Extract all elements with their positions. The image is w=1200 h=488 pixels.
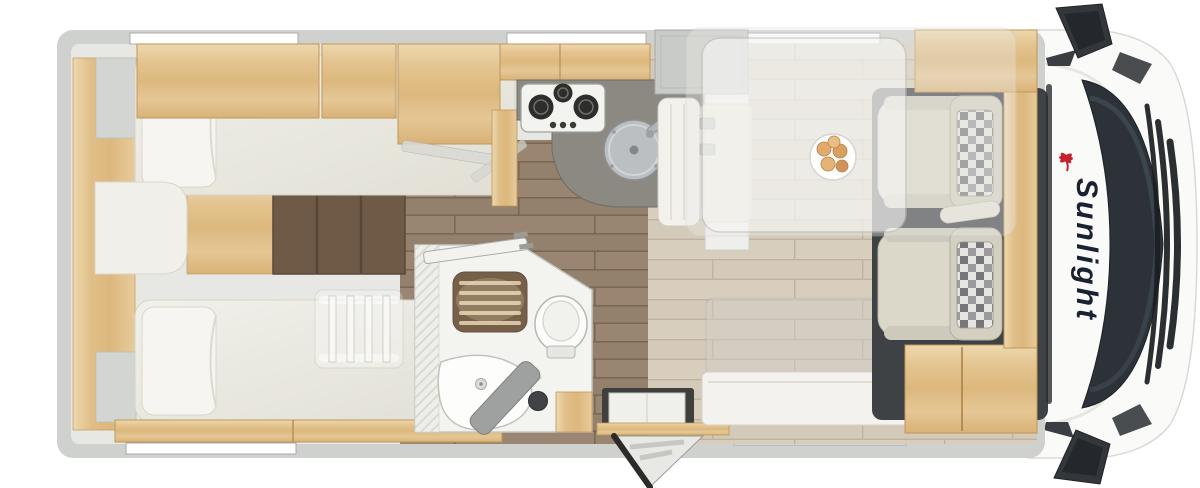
- corner-cabinet-bottom: [96, 352, 136, 422]
- hob-knob: [560, 122, 566, 128]
- food-plate: [810, 134, 856, 180]
- brand-text: Sunlight: [1070, 178, 1103, 322]
- corner-cabinet-top: [96, 58, 136, 138]
- hob-burner: [574, 95, 599, 120]
- hob-knob: [550, 122, 556, 128]
- kitchen-base-cabinet: [492, 110, 517, 206]
- bed-pillow: [142, 307, 216, 415]
- window-strip: [130, 33, 298, 44]
- bunk-ladder: [315, 290, 403, 368]
- motorhome-floorplan: Sunlight motorhome floor plan - top view: [0, 0, 1200, 488]
- hob-burner: [554, 84, 573, 103]
- bed-steps: [273, 182, 405, 274]
- window-strip: [126, 443, 296, 454]
- shower-grate: [453, 272, 527, 332]
- seat-fabric-checker: [957, 242, 993, 328]
- cab-door-frame: [1046, 84, 1052, 404]
- hob-knob: [570, 122, 576, 128]
- bathroom-cabinet: [556, 392, 592, 432]
- bed-filler-cushion: [95, 182, 187, 274]
- shower-wall: [415, 245, 439, 432]
- bed-platform: [187, 182, 273, 274]
- wardrobe-cabinet: [398, 44, 500, 144]
- dinette-table: [702, 38, 906, 232]
- overhead-cabinets-top: [137, 44, 396, 118]
- window-strip: [507, 33, 646, 44]
- floorplan-canvas: Sunlight motorhome floor plan - top view: [0, 0, 1200, 488]
- hob-burner: [529, 95, 554, 120]
- kitchen-overhead-cabinet: [500, 44, 650, 80]
- passenger-seat: [878, 228, 1002, 340]
- gas-hob: [521, 84, 605, 133]
